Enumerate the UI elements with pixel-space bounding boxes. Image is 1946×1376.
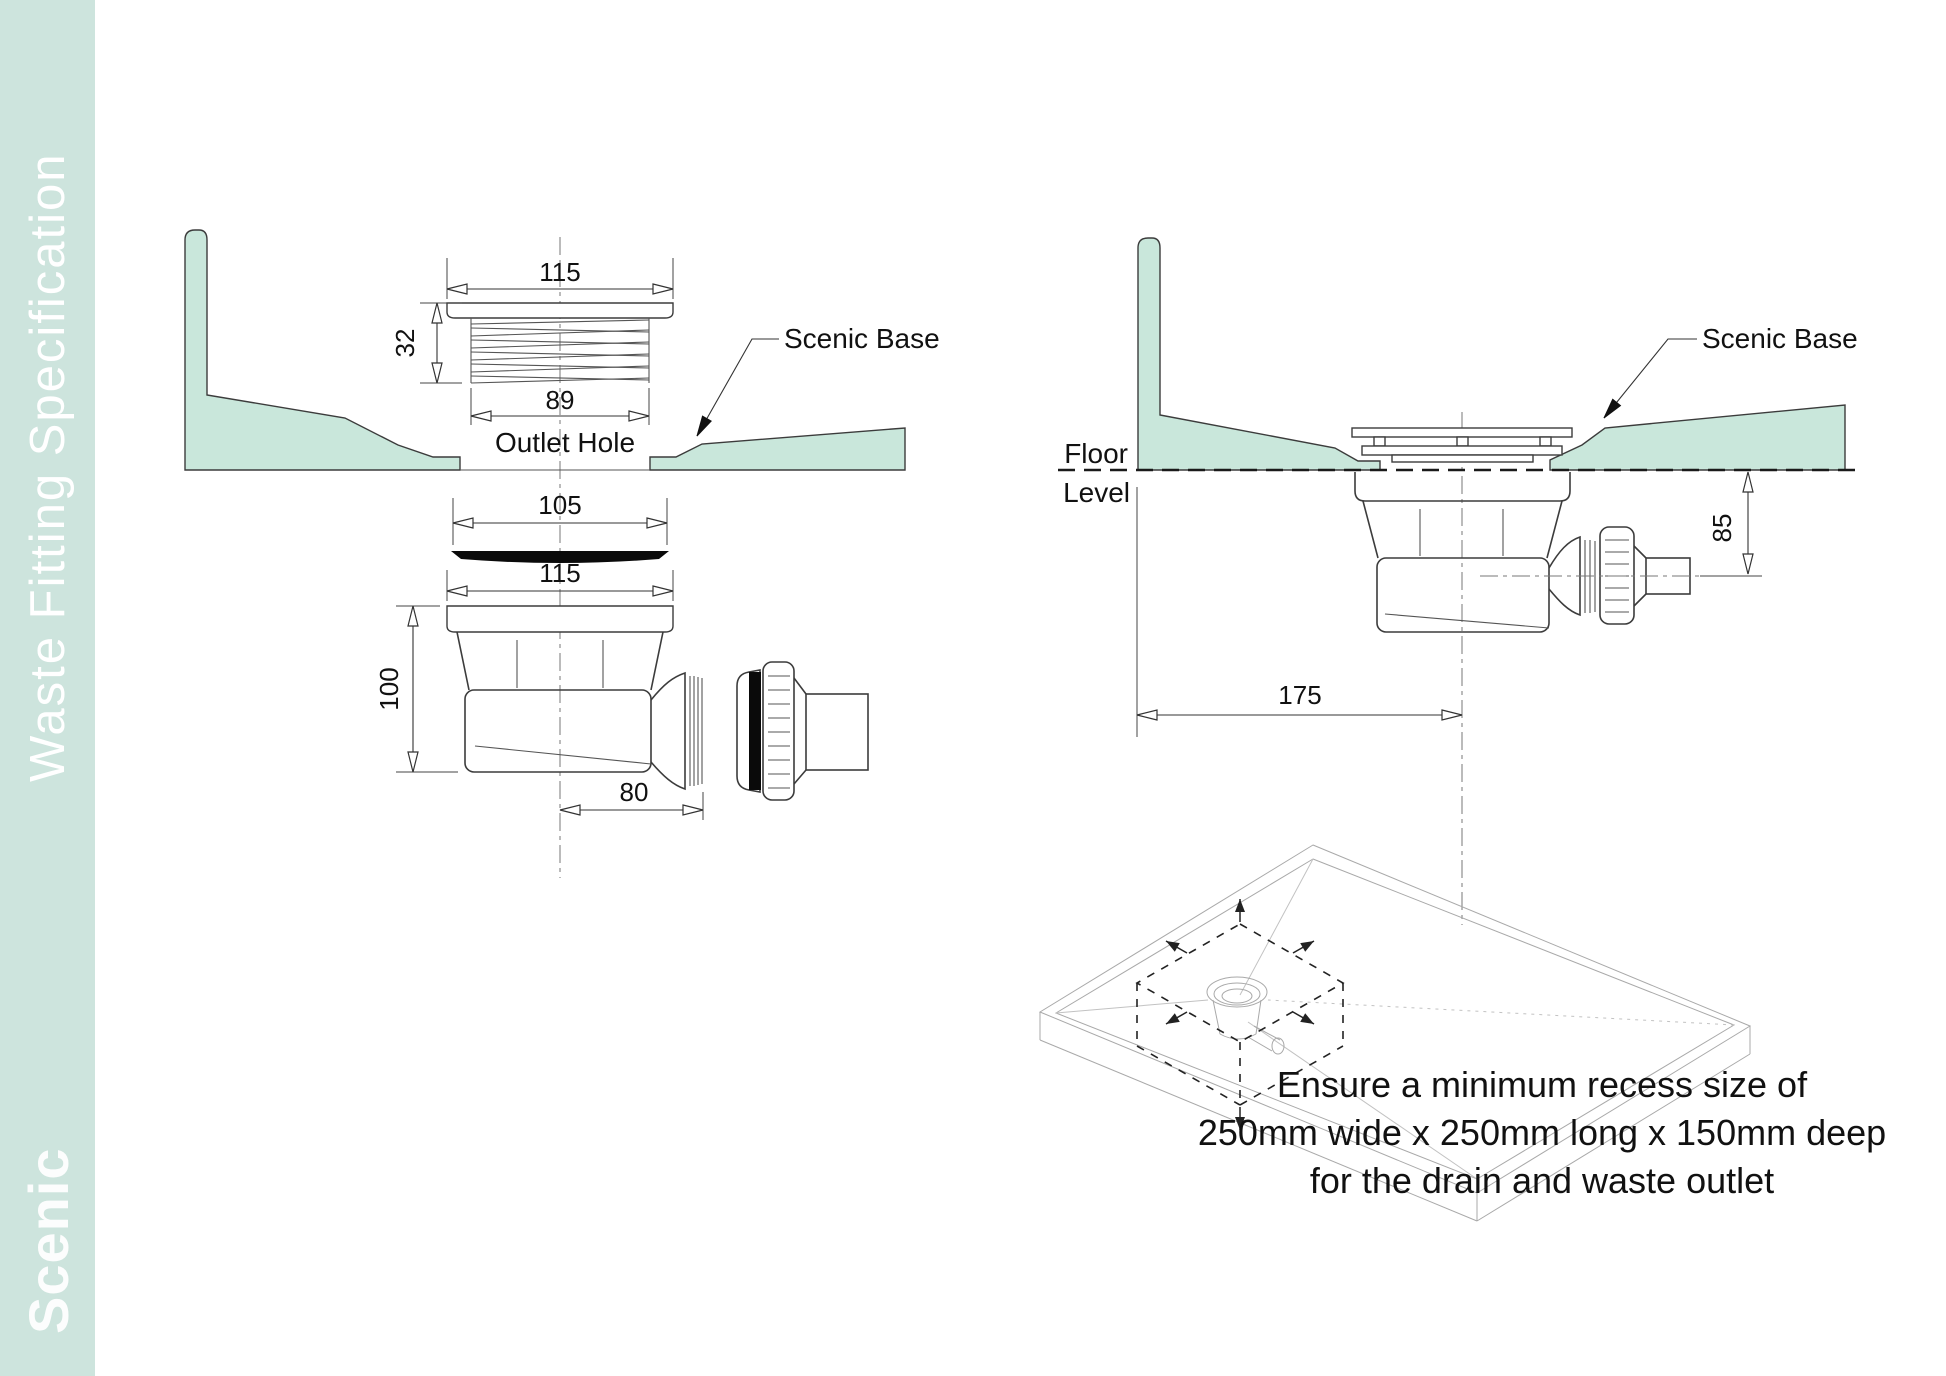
svg-text:32: 32 <box>390 329 420 358</box>
note-line1: Ensure a minimum recess size of <box>1277 1064 1808 1105</box>
right-flange-assembly <box>1352 428 1572 462</box>
connector-washer <box>749 672 761 790</box>
left-base-right-part <box>650 428 905 470</box>
right-scenic-base-callout: Scenic Base <box>1604 323 1858 418</box>
dim-trap-height: 100 <box>374 606 458 772</box>
trap-body <box>447 606 702 789</box>
compression-connector <box>737 662 868 800</box>
svg-text:115: 115 <box>539 257 580 287</box>
connector-pipe <box>806 694 868 770</box>
svg-text:115: 115 <box>539 558 580 588</box>
left-scenic-base-label: Scenic Base <box>784 323 940 354</box>
right-scenic-base-label: Scenic Base <box>1702 323 1858 354</box>
spec-drawing: 115 32 89 Outlet Hole Scenic Base <box>0 0 1946 1376</box>
note-line3: for the drain and waste outlet <box>1310 1160 1774 1201</box>
svg-text:100: 100 <box>374 667 404 710</box>
floor-label-line2: Level <box>1063 477 1130 508</box>
right-base-left-part <box>1138 238 1380 470</box>
dim-trap-offset: 175 <box>1137 487 1462 737</box>
svg-text:85: 85 <box>1707 514 1737 543</box>
svg-text:80: 80 <box>620 777 649 807</box>
left-section-view: 115 32 89 Outlet Hole Scenic Base <box>185 230 940 878</box>
floor-label-line1: Floor <box>1064 438 1128 469</box>
right-trap-body <box>1355 472 1706 632</box>
outlet-hole-label: Outlet Hole <box>495 427 635 458</box>
svg-text:175: 175 <box>1278 680 1321 710</box>
right-installed-view: Floor Level Scenic Base <box>1058 238 1858 925</box>
dim-thread-width: 89 <box>471 385 649 425</box>
note-line2: 250mm wide x 250mm long x 150mm deep <box>1198 1112 1886 1153</box>
svg-text:89: 89 <box>546 385 575 415</box>
left-scenic-base-callout: Scenic Base <box>697 323 940 436</box>
right-base-right-part <box>1550 405 1845 470</box>
waste-flange <box>447 303 673 318</box>
page: Waste Fitting Specification Scenic <box>0 0 1946 1376</box>
dim-outlet-offset: 80 <box>560 777 703 820</box>
svg-text:105: 105 <box>538 490 581 520</box>
dim-outlet-depth: 85 <box>1700 472 1762 576</box>
recess-note: Ensure a minimum recess size of 250mm wi… <box>1198 1064 1886 1201</box>
waste-fitting-iso <box>1207 977 1284 1054</box>
